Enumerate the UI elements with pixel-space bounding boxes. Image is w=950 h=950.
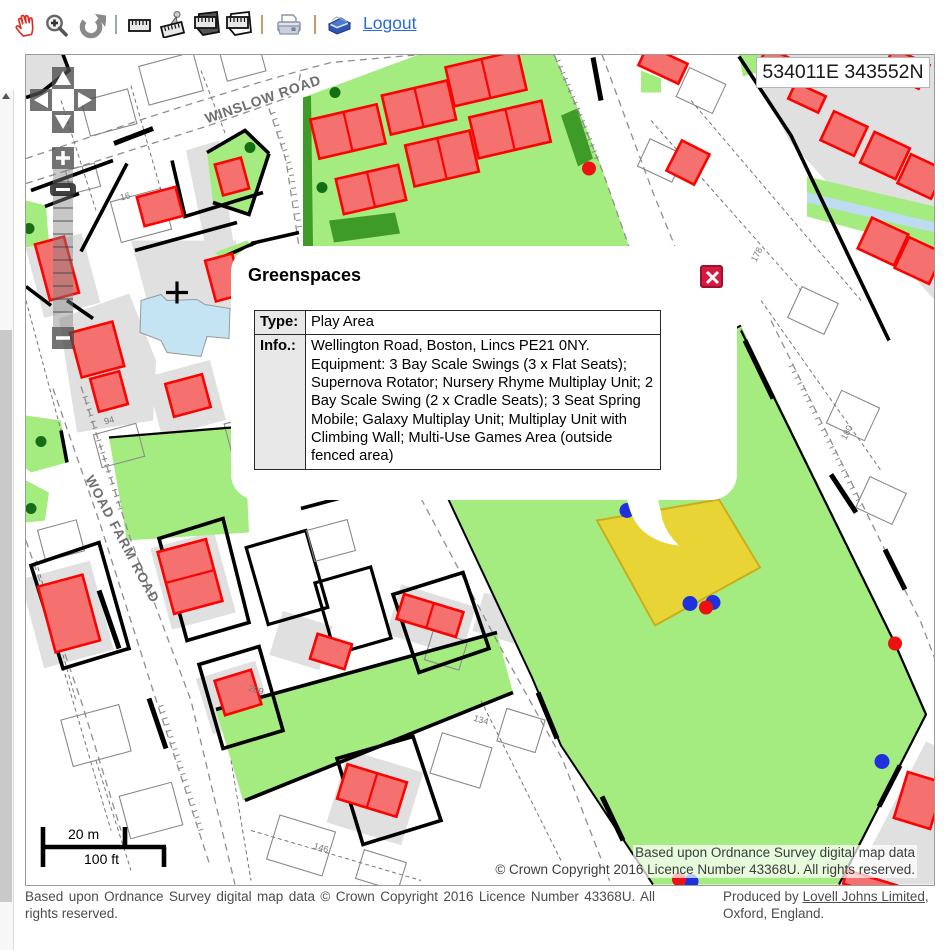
svg-text:20 m: 20 m [68,826,99,842]
svg-text:100 ft: 100 ft [84,851,119,867]
